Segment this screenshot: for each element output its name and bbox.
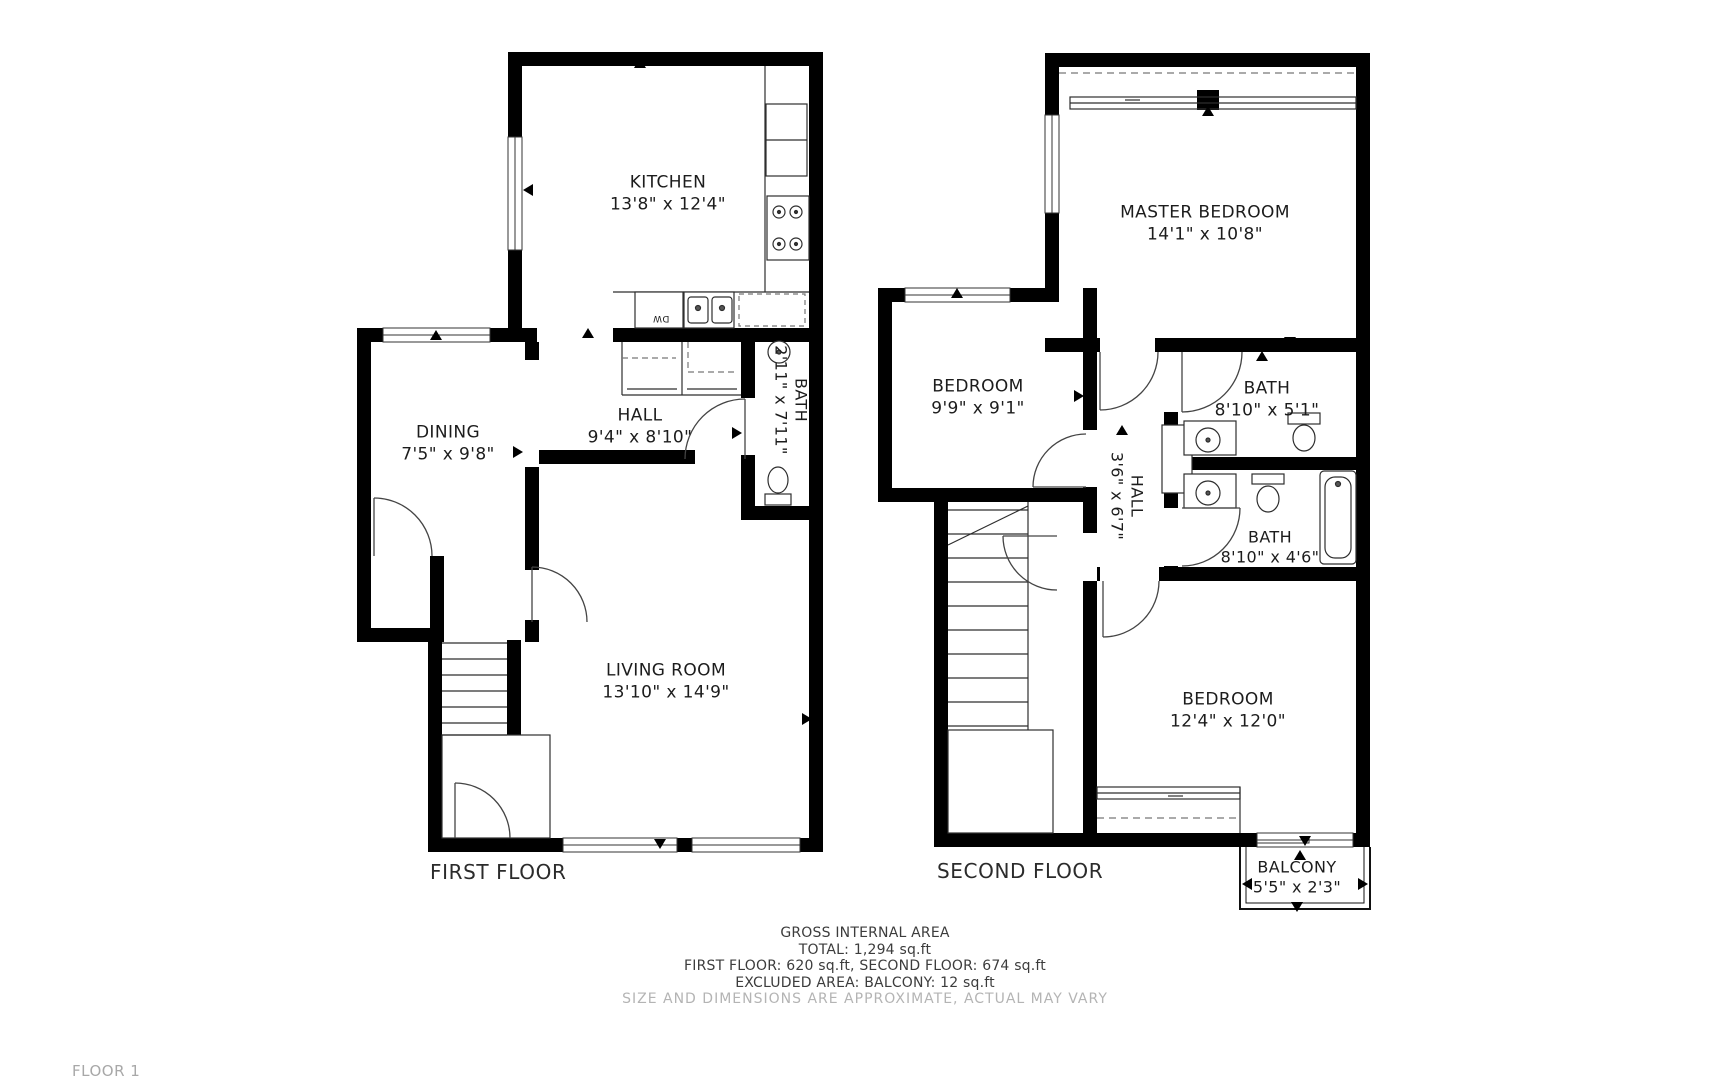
room-label-hall-second: HALL 3'6" x 6'7" (1106, 452, 1147, 540)
room-label-bath-upper: BATH 8'10" x 5'1" (1215, 378, 1320, 422)
fridge-icon (766, 104, 807, 176)
room-label-hall-first: HALL 9'4" x 8'10" (588, 405, 693, 449)
room-name: KITCHEN (610, 172, 726, 194)
stove-icon (767, 196, 809, 260)
room-name: DINING (401, 422, 495, 444)
entry-closet (442, 735, 550, 838)
stair-landing (948, 730, 1053, 833)
room-label-dining: DINING 7'5" x 9'8" (401, 422, 495, 466)
room-name: HALL (588, 405, 693, 427)
toilet-icon (1252, 474, 1284, 512)
room-dims: 12'4" x 12'0" (1170, 711, 1286, 733)
room-dims: 8'10" x 5'1" (1215, 400, 1320, 422)
toilet-icon (765, 467, 791, 505)
room-label-master-bedroom: MASTER BEDROOM 14'1" x 10'8" (1120, 202, 1290, 246)
room-name: BATH (1215, 378, 1320, 400)
room-label-balcony: BALCONY 5'5" x 2'3" (1253, 858, 1341, 899)
caption-first-floor: FIRST FLOOR (430, 860, 566, 884)
summary-per-floor: FIRST FLOOR: 620 sq.ft, SECOND FLOOR: 67… (565, 958, 1165, 975)
room-name: BATH (790, 345, 810, 454)
hall-closet (622, 342, 741, 395)
bath-vanity-sink-icon (1184, 474, 1236, 508)
stairs-second-floor (948, 502, 1053, 833)
area-summary: GROSS INTERNAL AREA TOTAL: 1,294 sq.ft F… (565, 925, 1165, 1008)
window (692, 838, 800, 852)
summary-disclaimer: SIZE AND DIMENSIONS ARE APPROXIMATE, ACT… (565, 991, 1165, 1008)
floorplan-drawing (0, 0, 1729, 1080)
room-dims: 7'5" x 9'8" (401, 444, 495, 466)
kitchen-sink-icon (684, 292, 734, 328)
kitchen-dashed-area (739, 294, 805, 326)
floor-tag: FLOOR 1 (72, 1062, 140, 1080)
bath-vanity-sink-icon (1184, 421, 1236, 455)
room-dims: 14'1" x 10'8" (1120, 224, 1290, 246)
bathtub-icon (1320, 471, 1356, 564)
door-arc (532, 567, 587, 622)
room-dims: 13'8" x 12'4" (610, 194, 726, 216)
room-name: BATH (1221, 528, 1320, 548)
room-name: BEDROOM (931, 376, 1025, 398)
room-label-bath-first: BATH 2'11" x 7'11" (770, 345, 811, 454)
room-dims: 9'9" x 9'1" (931, 398, 1025, 420)
room-name: BEDROOM (1170, 689, 1286, 711)
floorplan-canvas: KITCHEN 13'8" x 12'4" DINING 7'5" x 9'8"… (0, 0, 1729, 1080)
second-floor-walls (878, 53, 1370, 847)
door-arc (1103, 581, 1159, 637)
summary-excluded: EXCLUDED AREA: BALCONY: 12 sq.ft (565, 975, 1165, 992)
summary-total: TOTAL: 1,294 sq.ft (565, 942, 1165, 959)
room-dims: 13'10" x 14'9" (602, 682, 729, 704)
window (508, 137, 522, 250)
door-arc (1100, 352, 1158, 410)
stairs-first-floor (442, 643, 507, 735)
room-label-bedroom-2: BEDROOM 9'9" x 9'1" (931, 376, 1025, 420)
dishwasher-label: DW (653, 313, 670, 323)
bedroom-closet (1097, 787, 1240, 833)
room-name: HALL (1126, 452, 1146, 540)
room-label-kitchen: KITCHEN 13'8" x 12'4" (610, 172, 726, 216)
room-name: MASTER BEDROOM (1120, 202, 1290, 224)
room-dims: 5'5" x 2'3" (1253, 878, 1341, 898)
room-label-living-room: LIVING ROOM 13'10" x 14'9" (602, 660, 729, 704)
room-dims: 8'10" x 4'6" (1221, 548, 1320, 568)
summary-title: GROSS INTERNAL AREA (565, 925, 1165, 942)
room-label-bath-lower: BATH 8'10" x 4'6" (1221, 528, 1320, 569)
caption-second-floor: SECOND FLOOR (937, 859, 1103, 883)
room-dims: 2'11" x 7'11" (770, 345, 790, 454)
door-arc (455, 783, 510, 838)
door-arc (374, 498, 432, 556)
first-floor-windows (383, 137, 800, 852)
room-label-bedroom-3: BEDROOM 12'4" x 12'0" (1170, 689, 1286, 733)
window (1045, 115, 1059, 213)
door-arc (1033, 434, 1086, 487)
room-name: BALCONY (1253, 858, 1341, 878)
room-name: LIVING ROOM (602, 660, 729, 682)
room-dims: 3'6" x 6'7" (1106, 452, 1126, 540)
room-dims: 9'4" x 8'10" (588, 427, 693, 449)
